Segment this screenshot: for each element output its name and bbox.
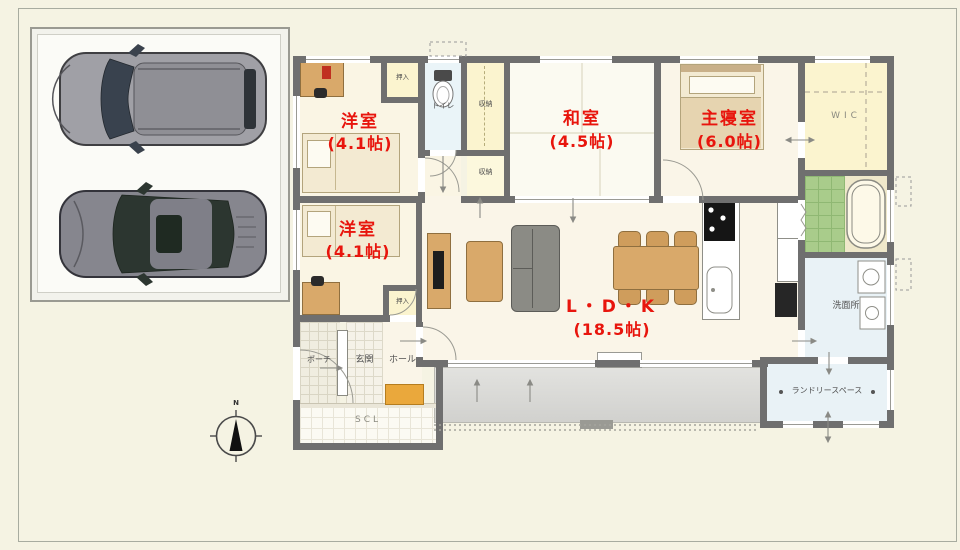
opening-yoshitsu2-door: [390, 315, 416, 322]
label-genkan: 玄関: [346, 356, 383, 366]
label-hall: ホール: [383, 356, 422, 366]
window-bath-east: [887, 190, 894, 242]
label-oshiire-upper: 押入: [387, 74, 418, 81]
desk-chair-yoshitsu2: [311, 276, 324, 286]
label-wic: WIC: [805, 112, 887, 122]
opening-porch-entry: [293, 347, 300, 400]
tv-set: [433, 251, 444, 289]
room-label-shushinshitsu: 主寝室: [661, 110, 798, 130]
kitchen-cupboard: [777, 196, 799, 282]
wood-deck: [434, 367, 762, 423]
window-shushinshitsu-north: [680, 56, 758, 63]
hall-shoe-cabinet: [385, 384, 424, 405]
sofa-cushion-line-v: [532, 229, 533, 308]
opening-senmenjo-laundry: [818, 357, 848, 364]
dining-chair: [618, 231, 641, 247]
room-size-yoshitsu1: (4.1帖): [300, 135, 420, 153]
label-porch: ポーチ: [297, 356, 341, 365]
wall-oshiire1-south: [381, 97, 418, 103]
bathtub-area-floor: [845, 176, 887, 252]
room-size-ldk: (18.5帖): [422, 321, 802, 339]
window-washitsu-north: [540, 56, 612, 63]
window-yoshitsu1-west: [293, 96, 300, 168]
opening-corridor-ldk: [425, 196, 461, 203]
dining-chair: [646, 231, 669, 247]
room-label-ldk: L・D・K: [422, 298, 802, 318]
label-laundry: ランドリースペース: [767, 387, 887, 396]
opening-yoshitsu1-door: [418, 158, 425, 192]
floor-plan-page: { "plan": { "rooms": { "yoshitsu1": {"na…: [0, 0, 960, 550]
sofa-cushion-line-h: [513, 268, 532, 269]
sliding-door-washitsu: [515, 196, 649, 203]
window-laundry-south-right: [843, 421, 879, 428]
compass-north-label: N: [226, 400, 246, 408]
label-toilet: トイレ: [423, 102, 463, 110]
deck-step: [580, 420, 613, 429]
window-wic-north: [815, 56, 870, 63]
desk-yoshitsu2: [302, 282, 340, 315]
window-toilet-north: [428, 56, 459, 63]
room-size-washitsu: (4.5帖): [510, 133, 654, 151]
wall-laundry-west: [760, 357, 767, 428]
dining-table: [613, 246, 699, 290]
opening-bath-door: [798, 200, 805, 240]
label-oshiire-lower: 押入: [389, 298, 416, 305]
parking-pad: [37, 34, 281, 293]
wall-bath-senmenjo: [805, 252, 894, 258]
desk-item-red: [322, 66, 331, 79]
pillow-shushinshitsu: [689, 76, 755, 94]
laundry-dot-right: [871, 390, 875, 394]
wall-oshiire2-north: [383, 285, 416, 291]
window-ldk-south-right: [640, 360, 752, 367]
window-yoshitsu2-west: [293, 210, 300, 270]
room-label-yoshitsu1: 洋室: [300, 113, 420, 133]
room-label-yoshitsu2: 洋室: [300, 221, 416, 241]
window-laundry-south-left: [783, 421, 813, 428]
bath-tile-floor: [805, 176, 845, 252]
headboard-shushinshitsu: [681, 65, 761, 72]
coffee-table: [466, 241, 503, 302]
wall-wic-bath: [805, 170, 894, 176]
window-laundry-east: [887, 370, 894, 410]
kitchen-stove: [704, 199, 735, 241]
label-storage-upper: 収納: [467, 101, 504, 109]
window-senmenjo-east: [887, 265, 894, 325]
window-yoshitsu1-north: [306, 56, 370, 63]
cupboard-shelf-line: [778, 238, 798, 239]
room-label-washitsu: 和室: [510, 110, 654, 130]
wall-scl-east: [436, 360, 443, 450]
label-scl: SCL: [300, 416, 436, 426]
corridor-floor: [425, 156, 461, 196]
label-storage-lower: 収納: [467, 169, 504, 177]
opening-shushinshitsu-door: [663, 196, 699, 203]
wall-entrance-south: [293, 443, 443, 450]
wall-washitsu-east: [654, 56, 661, 203]
opening-wic-door: [798, 122, 805, 158]
window-ldk-south-left: [448, 360, 595, 367]
opening-toilet-door: [430, 150, 456, 156]
room-size-yoshitsu2: (4.1帖): [300, 243, 416, 261]
desk-chair-yoshitsu1: [314, 88, 327, 98]
parking-area: [30, 27, 290, 302]
label-senmenjo: 洗面所: [805, 302, 887, 312]
room-size-shushinshitsu: (6.0帖): [661, 133, 798, 151]
laundry-dot-left: [779, 390, 783, 394]
dining-chair: [674, 231, 697, 247]
